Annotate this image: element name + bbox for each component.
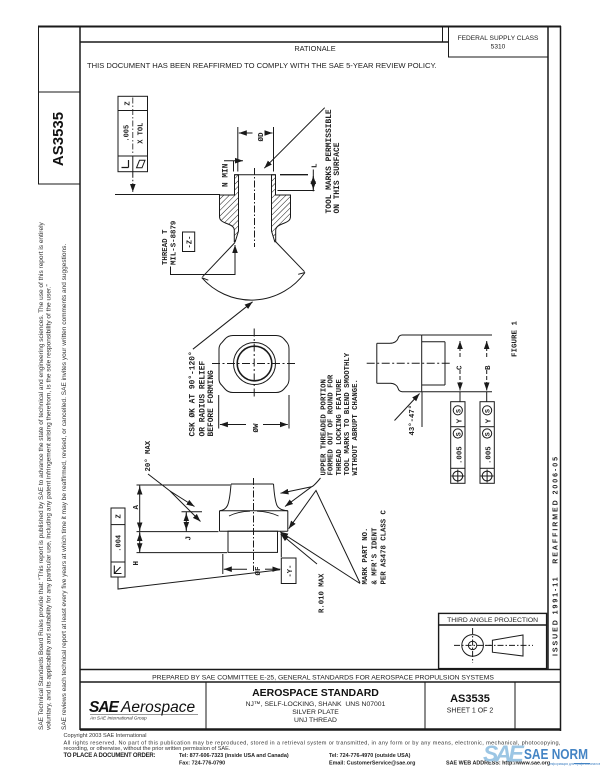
- svg-text:Aerospace: Aerospace: [120, 699, 195, 716]
- svg-text:Email: CustomerService@sae.org: Email: CustomerService@sae.org: [329, 761, 415, 767]
- svg-text:FIGURE 1: FIGURE 1: [512, 320, 520, 357]
- svg-text:recording, or otherwise, witho: recording, or otherwise, without the pri…: [64, 746, 231, 752]
- svg-text:ØW: ØW: [252, 423, 261, 433]
- svg-text:Tel: 877-606-7323 (inside USA: Tel: 877-606-7323 (inside USA and Canada…: [179, 753, 289, 759]
- svg-text:NJ™, SELF-LOCKING, SHANK UNS: NJ™, SELF-LOCKING, SHANK UNS N07001: [246, 701, 386, 708]
- svg-text:Z: Z: [116, 514, 124, 518]
- svg-text:SAE Technical Standards Board: SAE Technical Standards Board Rules prov…: [38, 221, 45, 730]
- svg-text:S: S: [455, 432, 462, 436]
- svg-text:.005: .005: [456, 446, 464, 464]
- svg-text:L: L: [312, 163, 320, 168]
- svg-text:R.010 MAX: R.010 MAX: [319, 573, 327, 613]
- svg-text:SAE: SAE: [89, 699, 120, 716]
- svg-text:BEFORE FORMING: BEFORE FORMING: [207, 370, 216, 437]
- svg-text:TOOL MARKS TO BLEND SMOOTHLY: TOOL MARKS TO BLEND SMOOTHLY: [344, 352, 352, 475]
- svg-text:FORMED OUT OF ROUND FOR: FORMED OUT OF ROUND FOR: [328, 374, 336, 475]
- svg-text:SILVER PLATE: SILVER PLATE: [292, 709, 339, 716]
- svg-text:B: B: [485, 365, 493, 370]
- svg-text:THIS DOCUMENT HAS BEEN REAFFIR: THIS DOCUMENT HAS BEEN REAFFIRMED TO COM…: [87, 61, 437, 70]
- svg-text:SHEET 1 OF 2: SHEET 1 OF 2: [447, 708, 494, 715]
- svg-text:Copyright 2003 SAE Internation: Copyright 2003 SAE International: [64, 733, 147, 739]
- svg-text:ISSUED 1991-11 REAFFIRMED 20: ISSUED 1991-11 REAFFIRMED 2006-05: [553, 455, 560, 656]
- svg-text:ON THIS SURFACE: ON THIS SURFACE: [333, 142, 342, 213]
- svg-text:S: S: [485, 432, 492, 436]
- svg-text:N MIN: N MIN: [222, 163, 230, 187]
- svg-text:-Z-: -Z-: [187, 236, 195, 249]
- svg-text:SAE: SAE: [483, 741, 525, 767]
- svg-text:TO PLACE A DOCUMENT ORDER:: TO PLACE A DOCUMENT ORDER:: [64, 753, 156, 759]
- svg-text:PREPARED BY SAE COMMITTEE E-25: PREPARED BY SAE COMMITTEE E-25, GENERAL …: [152, 675, 494, 682]
- svg-text:Y: Y: [456, 418, 464, 423]
- svg-text:THIRD ANGLE PROJECTION: THIRD ANGLE PROJECTION: [447, 617, 538, 624]
- svg-text:.005: .005: [486, 446, 494, 464]
- svg-text:FEDERAL SUPPLY CLASS: FEDERAL SUPPLY CLASS: [458, 35, 539, 42]
- svg-text:SAE NORM: SAE NORM: [524, 747, 588, 763]
- svg-text:S: S: [455, 409, 462, 413]
- svg-text:ØD: ØD: [257, 132, 266, 142]
- svg-text:.005: .005: [123, 125, 131, 142]
- svg-text:Tel: 724-776-4970 (outside USA: Tel: 724-776-4970 (outside USA): [329, 753, 411, 759]
- svg-text:THREAD LOCKING FEATURE: THREAD LOCKING FEATURE: [336, 379, 344, 476]
- svg-text:43°-47°: 43°-47°: [408, 405, 417, 436]
- svg-text:Z: Z: [125, 101, 133, 106]
- svg-text:AS3535: AS3535: [50, 112, 67, 166]
- svg-text:20° MAX: 20° MAX: [144, 440, 153, 471]
- svg-text:UNJ THREAD: UNJ THREAD: [294, 717, 337, 724]
- svg-text:J: J: [185, 536, 193, 541]
- svg-text:Y: Y: [486, 418, 494, 423]
- svg-text:H: H: [133, 561, 141, 566]
- svg-text:& MFR'S IDENT: & MFR'S IDENT: [371, 527, 379, 585]
- svg-text:AS3535: AS3535: [450, 693, 490, 705]
- svg-text:MARK PART NO.: MARK PART NO.: [362, 528, 370, 585]
- svg-text:ØF: ØF: [254, 566, 263, 576]
- svg-text:CSK ØK AT 90°-120°: CSK ØK AT 90°-120°: [189, 351, 198, 436]
- svg-text:PER AS478 CLASS C: PER AS478 CLASS C: [381, 509, 389, 584]
- svg-text:S: S: [485, 409, 492, 413]
- svg-text:An SAE International Group: An SAE International Group: [89, 716, 147, 721]
- svg-text:.004: .004: [116, 535, 124, 552]
- svg-text:A: A: [133, 505, 141, 510]
- svg-text:Fax: 724-776-0790: Fax: 724-776-0790: [179, 761, 225, 767]
- svg-text:voluntary, and its applicabili: voluntary, and its applicability and sui…: [46, 284, 53, 730]
- svg-text:RATIONALE: RATIONALE: [294, 44, 335, 53]
- svg-text:5310: 5310: [491, 44, 506, 51]
- svg-text:C: C: [457, 365, 465, 370]
- svg-text:MIL-S-8879: MIL-S-8879: [170, 221, 178, 265]
- svg-text:-Y-: -Y-: [287, 565, 295, 578]
- svg-text:AEROSPACE STANDARD: AEROSPACE STANDARD: [252, 687, 379, 699]
- svg-text:X TOL: X TOL: [137, 123, 145, 144]
- svg-text:THREAD T: THREAD T: [162, 229, 170, 265]
- svg-text:SAE reviews each technical rep: SAE reviews each technical report at lea…: [61, 244, 68, 730]
- svg-text:WITHOUT ABRUPT CHANGE.: WITHOUT ABRUPT CHANGE.: [352, 379, 360, 475]
